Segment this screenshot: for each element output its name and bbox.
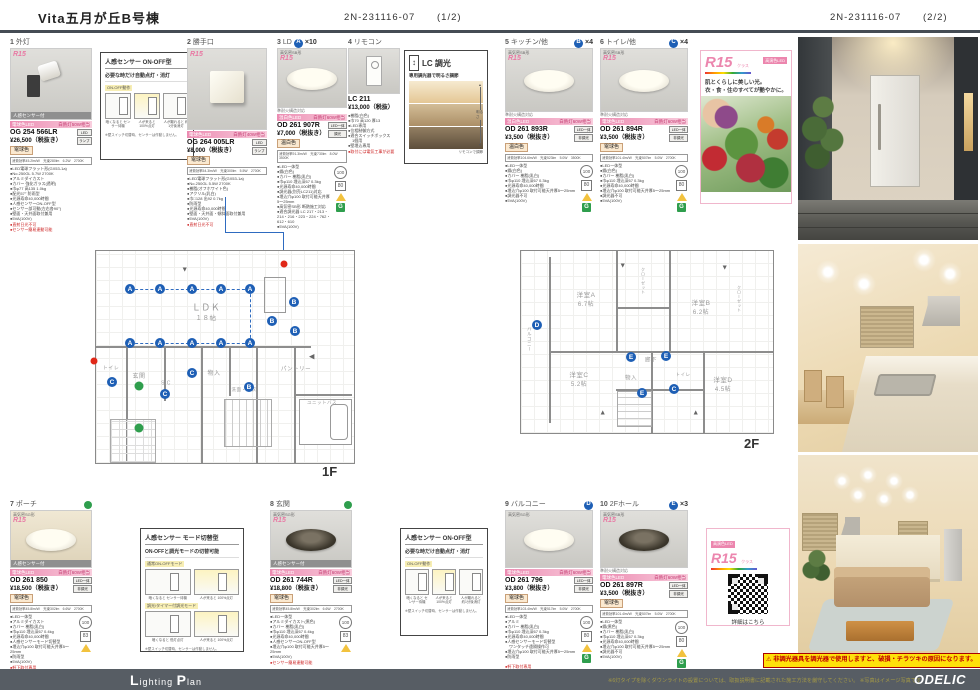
plan-marker-C: C <box>107 377 117 387</box>
card-number: 8 <box>270 501 274 510</box>
refrigerator <box>944 529 962 581</box>
qr-link-label: 詳細はこちら <box>707 618 789 626</box>
room-label: ユニットバス <box>307 401 337 406</box>
insulation-badge: 80 <box>676 636 688 646</box>
spec-table: 消費効率101.4lm/W 光束507lm 5.0W 2700K <box>600 154 688 163</box>
rainbow-strip <box>711 568 757 570</box>
spec-bullets-red: ●軒下取付専用 <box>505 664 593 669</box>
room-label: クローゼット <box>737 286 741 313</box>
model-number: OD 261 897R <box>600 582 669 591</box>
info-card-sensor-mode: 人感センサー モード切替型 ON-OFFと調光モードの切替可能 通常ON-OFF… <box>140 528 244 652</box>
type-chips: LED一体非調光 <box>333 577 352 593</box>
light-color-chip: 電球色 <box>187 156 210 164</box>
band-right: 白熱灯60W相当 <box>559 118 591 125</box>
lamp-color-band: 電球色LED白熱灯60W相当 <box>600 574 688 581</box>
certification-badges: 10080G <box>580 614 593 662</box>
card-label: トイレ/他 <box>606 39 636 48</box>
chip: ランプ <box>252 147 267 154</box>
porch-tiles <box>110 419 156 463</box>
sensor-band: 人感センサー付 <box>11 560 91 567</box>
card-header: 6トイレ/他C×4 <box>600 38 688 48</box>
slope-icon <box>81 644 91 652</box>
card-label: 2Fホール <box>610 501 639 510</box>
chip: 非調光 <box>574 134 593 141</box>
lit-window <box>964 93 973 151</box>
g-mark-icon: G <box>677 203 686 212</box>
band-left: 電球色LED <box>189 131 211 138</box>
mode1-diagrams: 暗くなると センサー待機 人が来ると 100%点灯 <box>145 569 239 600</box>
model-number: OG 254 566LR <box>10 129 77 138</box>
spec-bullets-red: ●直射日光不可 <box>187 222 267 227</box>
plan-marker-A: A <box>125 284 135 294</box>
enclosed-badge: 100 <box>580 616 593 629</box>
r15-logo-block: 高演色LED R15 クラス <box>707 529 789 570</box>
marker-count: ×3 <box>680 501 688 510</box>
downlight-white-icon <box>287 68 337 90</box>
price: ¥26,500（税抜き） <box>10 138 77 146</box>
price: ¥3,500（税抜き） <box>600 135 669 143</box>
fireproof-tag: 準耐火構造対応 <box>277 108 347 113</box>
chip: 非調光 <box>73 585 92 592</box>
promo-copy: 肌とくらしに美しい光。 衣・食・住のすべてが艶やかに。 <box>701 75 791 96</box>
band-right: 白熱灯60W相当 <box>654 118 686 125</box>
room-label: ▲ <box>692 410 699 417</box>
diagram-on: 人が来ると 100%点灯 <box>194 569 240 600</box>
spec-bullets: ●LED一体型 ●鋼(白色) ●カバー 樹脂(乳白) ●巾φ110 埋込深67 … <box>600 163 673 211</box>
spec-bullets: ●樹脂(白色) ●巾70 高120 厚13 ●LED専用 ●位相制御方式 ●適合… <box>348 113 400 148</box>
room-label: 洋室D <box>713 378 732 385</box>
updown-arrow-icon: ↕ <box>409 55 419 71</box>
room-label: トイレ <box>676 373 691 378</box>
info-title: 人感センサー モード切替型 <box>145 533 239 545</box>
sensor-band: 人感センサー付 <box>11 112 91 119</box>
band-right: 白熱灯60W相当 <box>313 114 345 121</box>
lamp-color-band: 電球色LED白熱灯60W相当 <box>600 118 688 125</box>
room-label: バルコニー <box>527 327 532 352</box>
info-note: ※壁スイッチ切替時、センサーは作動しません。 <box>405 608 483 613</box>
info-card-sensor-onoff-bottom: 人感センサー ON-OFF型 必要な時だけ自動点灯・消灯 ON-OFF動作 暗く… <box>400 528 488 636</box>
plan-marker-A: A <box>245 338 255 348</box>
spec-bullets-red: ●直射日光不可 ●センサー簡易連動可能 <box>10 222 92 232</box>
window-blinds <box>860 306 914 348</box>
info-note: ※壁スイッチ切替時、センサーは作動しません。 <box>145 646 239 651</box>
band-left: 電球色LED <box>12 121 34 128</box>
r15-logo-block: R15 クラス 高演色LED <box>701 51 791 75</box>
spec-table: 消費効率45.8lm/W 光束302lm 6.6W 2700K <box>270 605 352 614</box>
downlight-black-icon <box>619 529 669 551</box>
room-label: 物入 <box>207 371 220 377</box>
product-card-6-toilet: 6トイレ/他C×4 高気密SB形 R15 準耐火構造対応 電球色LED白熱灯60… <box>600 38 688 212</box>
plan-marker-r <box>281 261 288 268</box>
r15-logo: R15 <box>13 51 26 58</box>
chip: 非調光 <box>333 585 352 592</box>
airtight-tag: 高気密SG形 <box>508 512 530 517</box>
spec-bullets: ●LED一体型 ●アルミ ●カバー 樹脂(乳白) ●巾φ110 埋込深67 0.… <box>505 614 578 662</box>
card-number: 10 <box>600 501 608 510</box>
dimmer-switch-icon <box>366 56 382 86</box>
lc-footnote: リモコンで調節 <box>409 150 483 155</box>
floor-plan-1f: ＬＤＫ１８帖トイレ玄関SIC物入洗面・脱衣パントリーユニットバス▼◀AAAAAA… <box>95 250 355 464</box>
spec-bullets-red: ●センサー簡易連動可能 <box>270 660 352 665</box>
room-label: 玄関 <box>132 374 145 380</box>
card-number: 3 <box>277 39 281 48</box>
band-left: 電球色LED <box>602 118 624 125</box>
card-label: 外灯 <box>16 39 30 48</box>
stairs <box>224 399 272 447</box>
room-label: パントリー <box>281 367 311 373</box>
sensor-band: 人感センサー付 <box>271 560 351 567</box>
spec-table: 消費効率45.2lm/W 光束280lm 6.2W 2700K <box>10 157 92 166</box>
marker-green-icon <box>84 501 92 509</box>
plan-marker-B: B <box>290 326 300 336</box>
warning-icon: ⚠ <box>766 656 772 663</box>
slope-icon <box>341 644 351 652</box>
price: ¥3,500（税抜き） <box>600 591 669 599</box>
spec-bullets: ●LED電球フラット形(GX53-1a) ●No.250GL 5.5W 2700… <box>187 176 267 221</box>
product-photo-downlight-black: 高気密SG形 R15 人感センサー付 <box>270 510 352 568</box>
band-right: 白熱灯60W相当 <box>654 574 686 581</box>
product-photo-downlight: 高気密SG形 <box>505 510 593 568</box>
product-photo-downlight: 高気密SG形 R15 人感センサー付 <box>10 510 92 568</box>
lamp-color-band: 電球色LED白熱灯50W相当 <box>10 121 92 128</box>
sensor-diagrams: 暗くなると センサー待機 人が来ると 100%点灯 人が離れると 約1分後消灯 <box>105 93 189 129</box>
band-left: 温白色LED <box>279 114 301 121</box>
connector-line <box>225 197 226 232</box>
product-card-10-2f-hall: 102FホールE×3 高気密SB形 R15 準耐火構造対応 電球色LED白熱灯6… <box>600 500 688 668</box>
band-right: 白熱灯40W相当 <box>233 131 265 138</box>
plan-marker-E: E <box>637 388 647 398</box>
card-label: ポーチ <box>16 501 37 510</box>
card-number: 9 <box>505 501 509 510</box>
product-card-3-ld: 3LDA×10 高気密SB形 R15 準耐火構造対応 温白色LED白熱灯60W相… <box>277 38 347 229</box>
marker-d-icon: D <box>584 501 593 510</box>
model-number: LC 211 <box>348 96 400 105</box>
stairs <box>617 391 652 427</box>
plan-marker-A: A <box>155 338 165 348</box>
type-chips: LED一体非調光 <box>574 577 593 593</box>
diagram-off2: 人が離れると 約1分後消灯 <box>163 93 189 129</box>
front-door <box>870 75 920 187</box>
chip: LED一体 <box>669 582 688 589</box>
certification-badges: 10080G <box>675 163 688 211</box>
chip: 非調光 <box>669 134 688 141</box>
marker-e-icon: E <box>669 501 678 510</box>
diagram-off: 暗くなると センサー待機 <box>145 569 191 600</box>
plan-marker-A: A <box>125 338 135 348</box>
light-color-chip: 電球色 <box>600 599 623 607</box>
photo-entrance <box>798 37 978 240</box>
card-header: 1外灯 <box>10 38 92 48</box>
entrance-steps <box>798 200 978 240</box>
model-number: OD 261 894R <box>600 126 669 135</box>
bright-room-photo <box>409 81 483 103</box>
chair <box>826 376 844 408</box>
light-color-chip: 電球色 <box>10 594 33 602</box>
r15-logo: R15 <box>280 55 293 62</box>
mode2-label: 調光/タイマー付調光モード <box>145 603 198 609</box>
room-label: ▼ <box>181 267 188 274</box>
price: ¥3,800（税抜き） <box>505 586 574 594</box>
info-label: ON-OFF動作 <box>405 561 432 567</box>
diagram-on: 人が来ると 100%点灯 <box>432 569 456 605</box>
enclosed-badge: 100 <box>79 616 92 629</box>
spec-bullets: ●LED電球フラット形(GX53-1a) ●No.250GL 5.7W 2700… <box>10 166 92 221</box>
certification-badges: 10080G <box>675 619 688 667</box>
slope-icon <box>582 644 592 652</box>
chip: 非調光 <box>669 590 688 597</box>
diagram-off: 暗くなると センサー待機 <box>105 93 131 129</box>
fireproof-tag: 準耐火構造対応 <box>600 112 688 117</box>
r15-logo: R15 <box>508 55 521 62</box>
insulation-badge: 80 <box>581 180 593 190</box>
model-number: OD 261 907R <box>277 122 328 131</box>
plan-marker-r <box>91 358 98 365</box>
insulation-badge: 80 <box>335 181 347 191</box>
room-label: ▼ <box>619 263 626 270</box>
page-title: Vita五月が丘B号棟 <box>38 8 160 27</box>
spec-table: 消費効率54.3lm/W 光束300lm 5.5W 2700K <box>187 167 267 176</box>
band-right: 白熱灯60W相当 <box>559 569 591 576</box>
marker-b-icon: B <box>574 39 583 48</box>
chip: LED <box>252 139 267 146</box>
diagram-on: 人が来ると 100%点灯 <box>134 93 160 129</box>
price: ¥18,800（税抜き） <box>270 586 333 594</box>
chip: LED一体 <box>73 577 92 584</box>
footer-bar: Lighting Plan ※6灯タイプを除くダウンライトの設置については、取扱… <box>0 669 980 690</box>
spotlight-icon <box>27 75 40 97</box>
model-number: OD 261 893R <box>505 126 574 135</box>
coffee-table <box>846 621 914 641</box>
insulation-badge: 83 <box>340 631 352 641</box>
info-card-sensor-onoff-top: 人感センサー ON-OFF型 必要な時だけ自動点灯・消灯 ON-OFF動作 暗く… <box>100 52 194 160</box>
room-label: ▼ <box>721 265 728 272</box>
plan-marker-g <box>135 382 144 391</box>
certification-badges: 10083 <box>339 614 352 659</box>
card-label: 玄関 <box>276 501 290 510</box>
r15-logo-sub: クラス <box>741 559 753 564</box>
header-rule <box>0 30 980 33</box>
downlight-black-icon <box>286 529 336 551</box>
card-label: キッチン/他 <box>511 39 548 48</box>
downlight-white-icon <box>524 529 574 551</box>
model-number: OD 261 796 <box>505 577 574 586</box>
plan-marker-A: A <box>216 284 226 294</box>
card-number: 2 <box>187 39 191 48</box>
band-left: 電球色LED <box>272 569 294 576</box>
light-color-chip: 電球色 <box>10 146 33 154</box>
fireproof-tag: 準耐火構造対応 <box>600 568 688 573</box>
spec-bullets: ●LED一体型 ●鋼(黒色) ●カバー 樹脂(乳白) ●巾φ110 埋込深67 … <box>600 619 673 667</box>
diagram-low: 暗くなると 低灯点灯 <box>145 611 191 642</box>
r15-logo: R15 <box>273 517 286 524</box>
card-number: 1 <box>10 39 14 48</box>
type-chips: LED一体非調光 <box>669 126 688 142</box>
plant <box>800 85 858 195</box>
card-header: 3LDA×10 <box>277 38 347 48</box>
room-label: 6.7帖 <box>578 302 594 308</box>
spec-bullets: ●LED一体型 ●アルミダイカスト ●カバー 樹脂(乳白) ●巾φ110 埋込深… <box>10 614 77 664</box>
info-note: ※壁スイッチ切替時、センサーは作動しません。 <box>105 132 189 137</box>
diagram-off: 暗くなると センサー待機 <box>405 569 429 605</box>
room-label: ＬＤＫ <box>192 304 221 313</box>
card-header: 9バルコニーD <box>505 500 593 510</box>
chip: LED一体 <box>328 122 347 129</box>
chip: 調光 <box>328 130 347 137</box>
enclosed-badge: 100 <box>675 621 688 634</box>
brightness-axis: ▲明るさ▼ <box>476 83 484 147</box>
product-card-5-kitchen: 5キッチン/他B×4 高気密SB形 R15 準耐火構造対応 温白色LED白熱灯6… <box>505 38 593 212</box>
lamp-color-band: 電球色LED白熱灯60W相当 <box>270 569 352 576</box>
plan-marker-C: C <box>187 368 197 378</box>
floor-label-2f: 2F <box>744 436 759 451</box>
room-label: ▲ <box>599 410 606 417</box>
card-header: 7ポーチ <box>10 500 92 510</box>
diagram-off2: 人が離れると 約1分後消灯 <box>459 569 483 605</box>
card-header: 5キッチン/他B×4 <box>505 38 593 48</box>
light-color-chip: 電球色 <box>270 594 293 602</box>
slope-icon <box>677 193 687 201</box>
r15-logo-sub: クラス <box>737 63 749 68</box>
g-mark-icon: G <box>582 654 591 663</box>
r15-qr-card: 高演色LED R15 クラス 詳細はこちら <box>706 528 790 626</box>
vegetables-photo <box>701 96 791 192</box>
r15-logo: R15 <box>13 517 26 524</box>
chip: LED一体 <box>574 577 593 584</box>
product-photo-dimmer <box>348 48 400 94</box>
light-color-chip: 電球色 <box>505 594 528 602</box>
product-card-7-porch: 7ポーチ 高気密SG形 R15 人感センサー付 電球色LED白熱灯60W相当 O… <box>10 500 92 675</box>
lamp-color-band: 電球色LED白熱灯60W相当 <box>505 569 593 576</box>
product-photo-downlight-black: 高気密SB形 R15 <box>600 510 688 568</box>
chip: LED一体 <box>669 126 688 133</box>
product-card-9-balcony: 9バルコニーD 高気密SG形 電球色LED白熱灯60W相当 OD 261 796… <box>505 500 593 669</box>
floor-plan-2f: 洋室A6.7帖洋室B6.2帖洋室C5.2帖洋室D4.5帖廊下物入トイレバルコニー… <box>520 250 774 434</box>
spec-bullets: ●LED一体型 ●アルミダイカスト(黒色) ●カバー 樹脂(乳白) ●巾φ110… <box>270 614 337 659</box>
band-right: 白熱灯60W相当 <box>318 569 350 576</box>
lamp-color-band: 温白色LED白熱灯60W相当 <box>505 118 593 125</box>
light-color-chip: 温白色 <box>277 139 300 147</box>
room-label: 5.2帖 <box>571 382 587 388</box>
card-header: 102FホールE×3 <box>600 500 688 510</box>
certification-badges: 10083 <box>79 614 92 664</box>
card-label: リモコン <box>354 39 382 48</box>
type-chips: LEDランプ <box>77 129 92 145</box>
marker-a-icon: A <box>294 39 303 48</box>
lamp-color-band: 電球色LED白熱灯60W相当 <box>10 569 92 576</box>
enclosed-badge: 100 <box>675 165 688 178</box>
sofa <box>834 567 930 607</box>
marker-count: ×10 <box>305 39 317 48</box>
fireproof-tag: 準耐火構造対応 <box>505 112 593 117</box>
light-color-chip: 電球色 <box>600 143 623 151</box>
band-right: 白熱灯50W相当 <box>58 121 90 128</box>
card-number: 6 <box>600 39 604 48</box>
room-label: ◀ <box>309 354 315 361</box>
info-subtitle: 必要な時だけ自動点灯・消灯 <box>405 548 483 558</box>
spec-bullets-red: ●取付には電気工事が必要 <box>348 149 400 154</box>
wall-light-icon <box>210 71 244 103</box>
card-header: 8玄関 <box>270 500 352 510</box>
product-photo-downlight: 高気密SB形 R15 <box>600 48 688 112</box>
r15-logo: R15 <box>711 550 737 566</box>
lc-subtitle: 専用調光器で明るさ調節 <box>409 73 483 79</box>
card-number: 7 <box>10 501 14 510</box>
g-mark-icon: G <box>677 659 686 668</box>
sensor-diagrams: 暗くなると センサー待機 人が来ると 100%点灯 人が離れると 約1分後消灯 <box>405 569 483 605</box>
floor-label-1f: 1F <box>322 464 337 479</box>
room-label: 洋室B <box>692 301 711 308</box>
card-number: 4 <box>348 39 352 48</box>
plan-marker-E: E <box>661 351 671 361</box>
info-label: ON-OFF動作 <box>105 85 132 91</box>
plan-marker-C: C <box>160 389 170 399</box>
plan-marker-E: E <box>626 352 636 362</box>
type-chips: LED一体非調光 <box>669 582 688 598</box>
plan-marker-A: A <box>187 284 197 294</box>
product-card-1-gaito: 1外灯 R15 人感センサー付 電球色LED白熱灯50W相当 OG 254 56… <box>10 38 92 232</box>
room-label: 洋室C <box>569 373 588 380</box>
connector-line <box>225 232 283 233</box>
chip: LED <box>77 129 92 136</box>
card-header: 4リモコン <box>348 38 400 48</box>
model-number: OD 261 744R <box>270 577 333 586</box>
slope-icon <box>582 193 592 201</box>
product-photo-downlight: 高気密SB形 R15 <box>505 48 593 112</box>
certification-badges: 10080G <box>580 163 593 211</box>
plan-marker-D: D <box>532 320 542 330</box>
band-left: 電球色LED <box>602 574 624 581</box>
qr-code <box>728 574 768 614</box>
g-mark-icon: G <box>336 203 345 212</box>
type-chips: LED一体調光 <box>328 122 347 138</box>
room-label: 6.2帖 <box>693 310 709 316</box>
price: ¥13,000（税抜） <box>348 105 400 113</box>
product-card-8-genkan: 8玄関 高気密SG形 R15 人感センサー付 電球色LED白熱灯60W相当 OD… <box>270 500 352 665</box>
r15-logo: R15 <box>603 517 616 524</box>
mode1-label: 通常ON-OFFモード <box>145 561 184 567</box>
price: ¥8,000（税抜き） <box>187 148 252 156</box>
room-label: 物入 <box>625 376 637 382</box>
lc-header: ↕LC 調光 <box>409 55 483 71</box>
type-chips: LEDランプ <box>252 139 267 155</box>
page-number-right: (2/2) <box>923 12 948 23</box>
chip: ランプ <box>77 137 92 144</box>
spec-table: 消費効率101.4lm/W 光束507lm 5.0W 2700K <box>600 610 688 619</box>
spec-table: 消費効率103.4lm/W 光束517lm 5.0W 2700K <box>505 605 593 614</box>
spec-table: 消費効率91.3lm/W 光束730lm 8.0W 3500K <box>277 150 347 164</box>
plan-marker-A: A <box>245 284 255 294</box>
downlight-white-icon <box>524 70 574 92</box>
spotlight-head-icon <box>37 60 61 81</box>
band-left: 電球色LED <box>12 569 34 576</box>
lighting-plan-page: Vita五月が丘B号棟 2N-231116-07 (1/2) 2N-231116… <box>0 0 980 690</box>
price: ¥18,500（税抜き） <box>10 586 73 594</box>
mid-room-photo <box>409 104 483 126</box>
lamp-color-band: 温白色LED白熱灯60W相当 <box>277 114 347 121</box>
plant <box>802 547 832 593</box>
certification-badges: 10080G <box>334 164 347 229</box>
insulation-badge: 80 <box>676 180 688 190</box>
model-number: OD 261 850 <box>10 577 73 586</box>
diagram-on: 人が来ると 100%点灯 <box>194 611 240 642</box>
card-label: LD <box>283 39 292 48</box>
lamp-color-band: 電球色LED白熱灯40W相当 <box>187 131 267 138</box>
plan-marker-B: B <box>289 297 299 307</box>
lighting-plan-brand: Lighting Plan <box>130 672 202 688</box>
spec-bullets: ●LED一体型 ●鋼(白色) ●カバー 樹脂(乳白) ●巾φ110 埋込深67 … <box>277 164 332 229</box>
dimming-photos: ▲明るさ▼ <box>409 81 483 149</box>
spec-table: 消費効率45.8lm/W 光束302lm 6.6W 2700K <box>10 605 92 614</box>
